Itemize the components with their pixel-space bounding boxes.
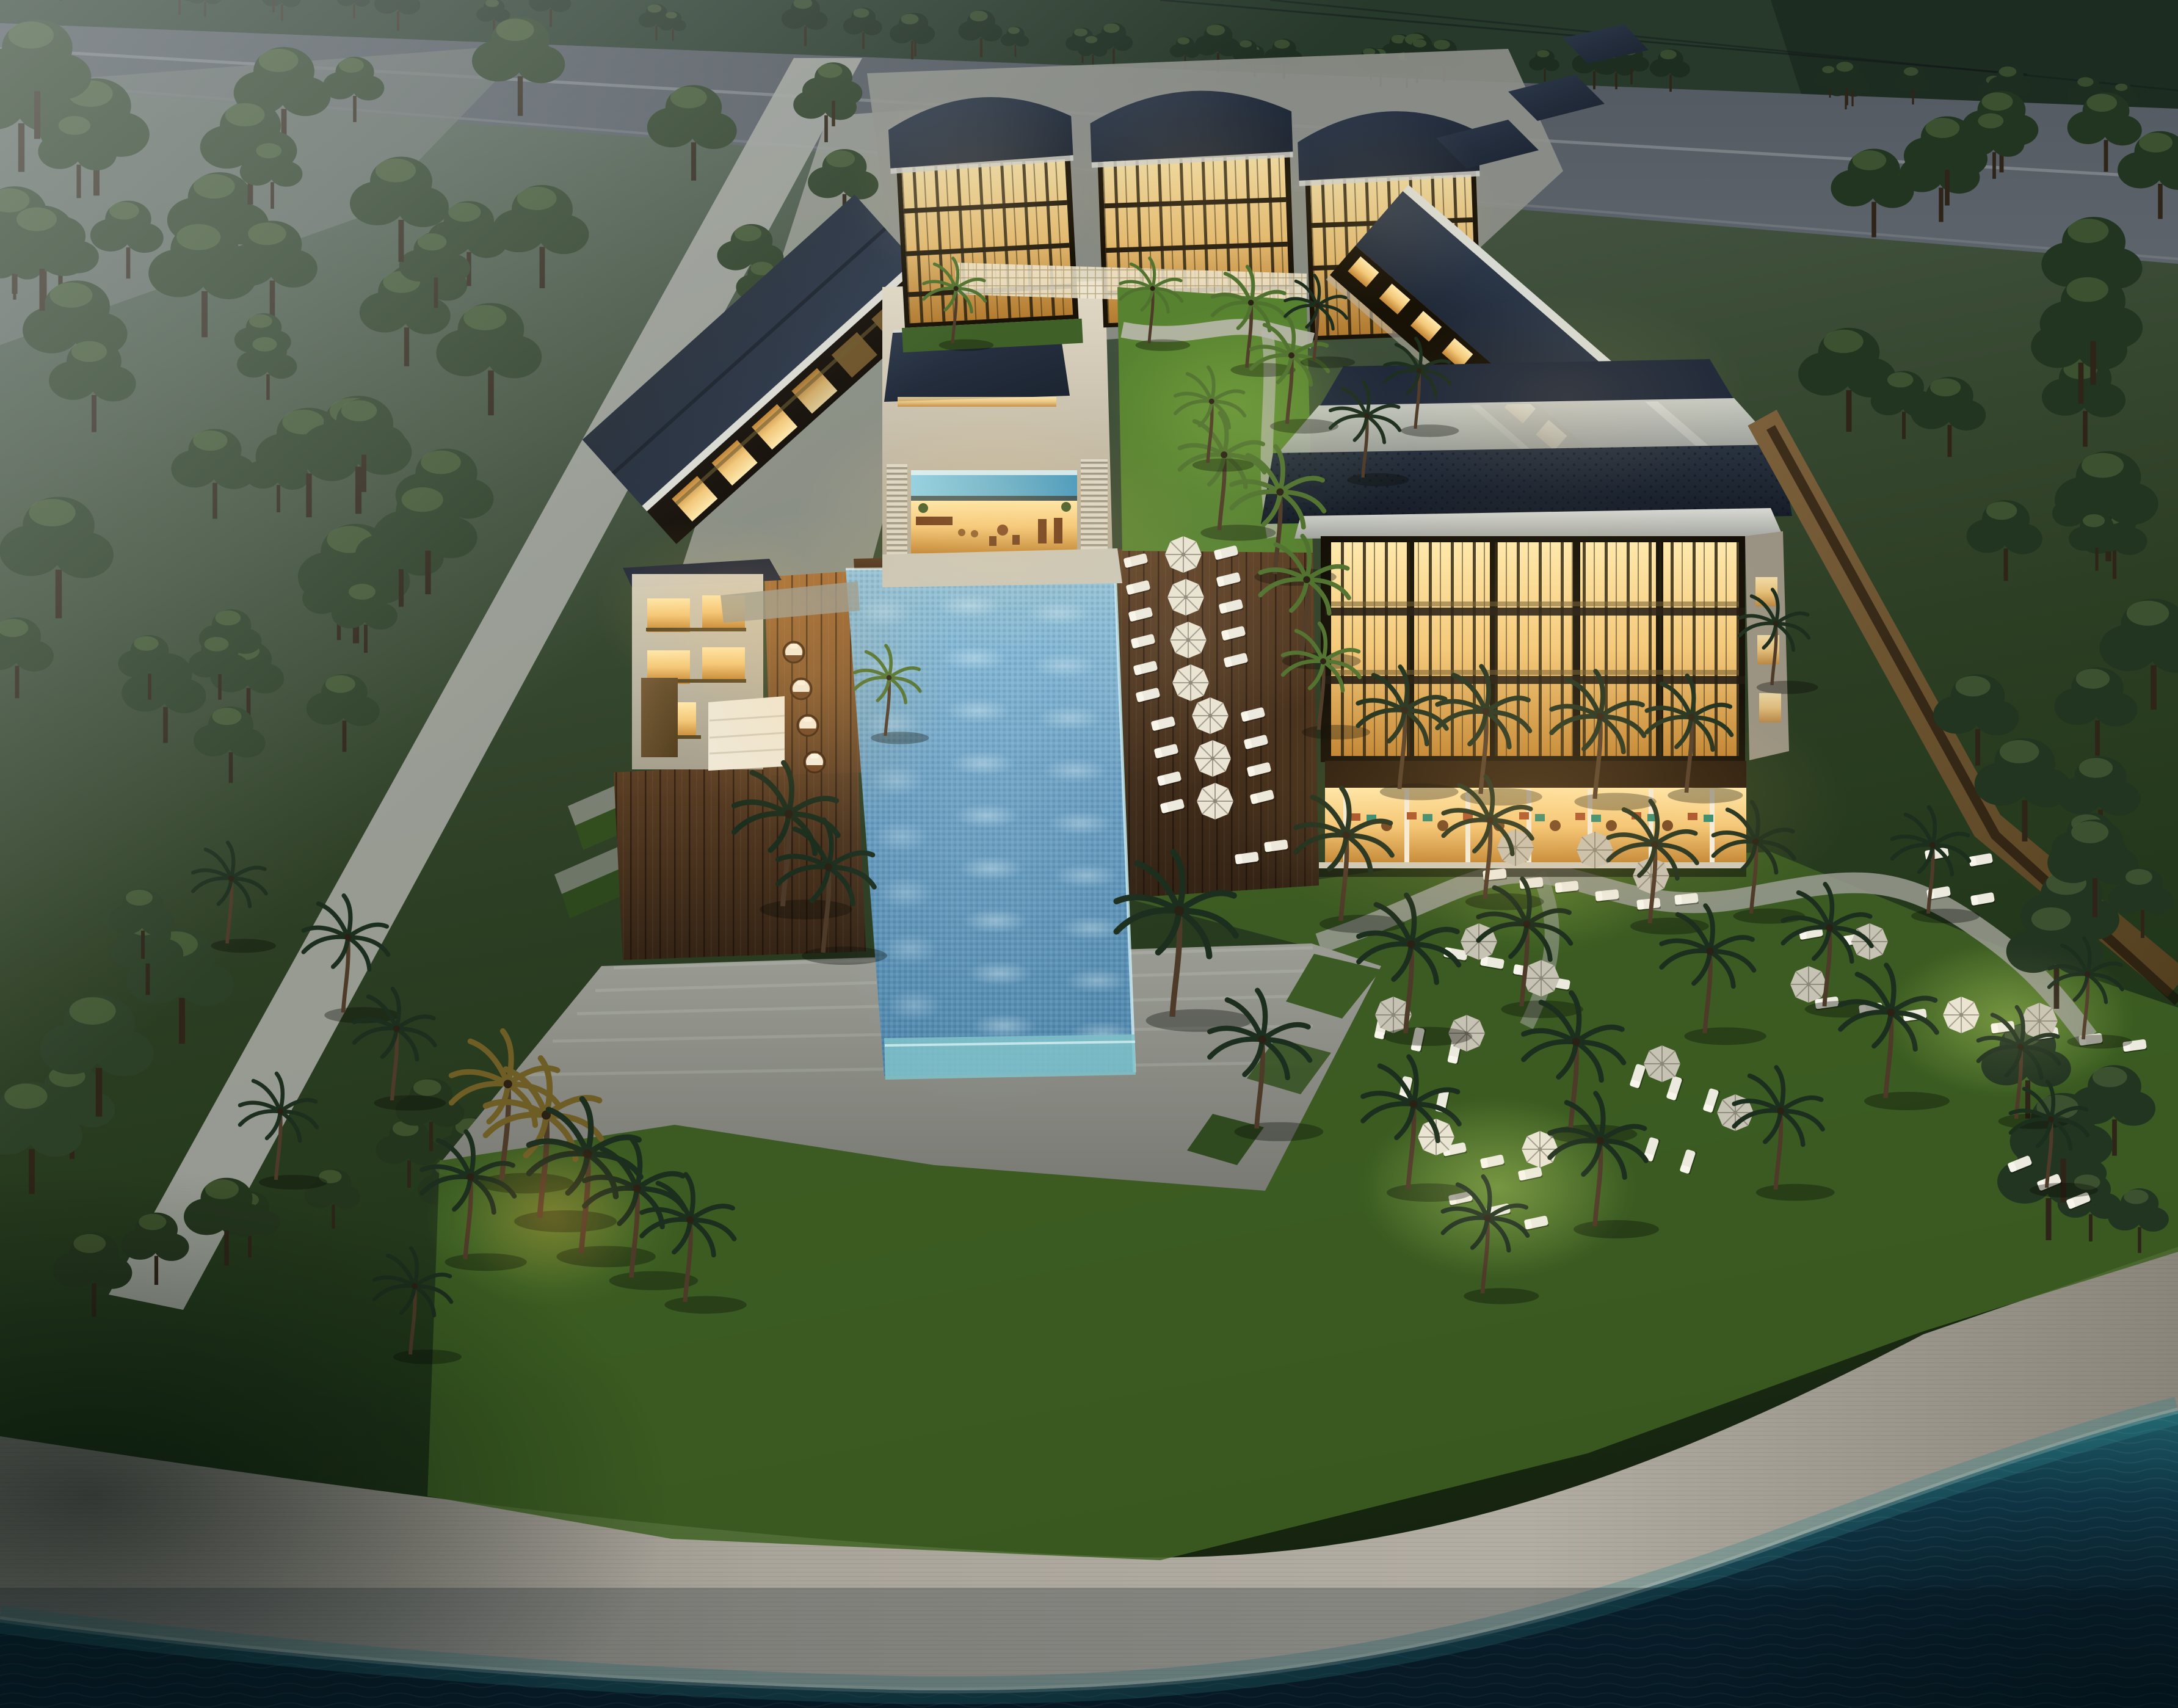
bottom-darkening: [0, 1588, 2178, 1708]
resort-night-aerial-image: Night aerial rendering of a beachfront r…: [0, 0, 2178, 1708]
resort-rendering: Night aerial rendering of a beachfront r…: [0, 0, 2178, 1708]
